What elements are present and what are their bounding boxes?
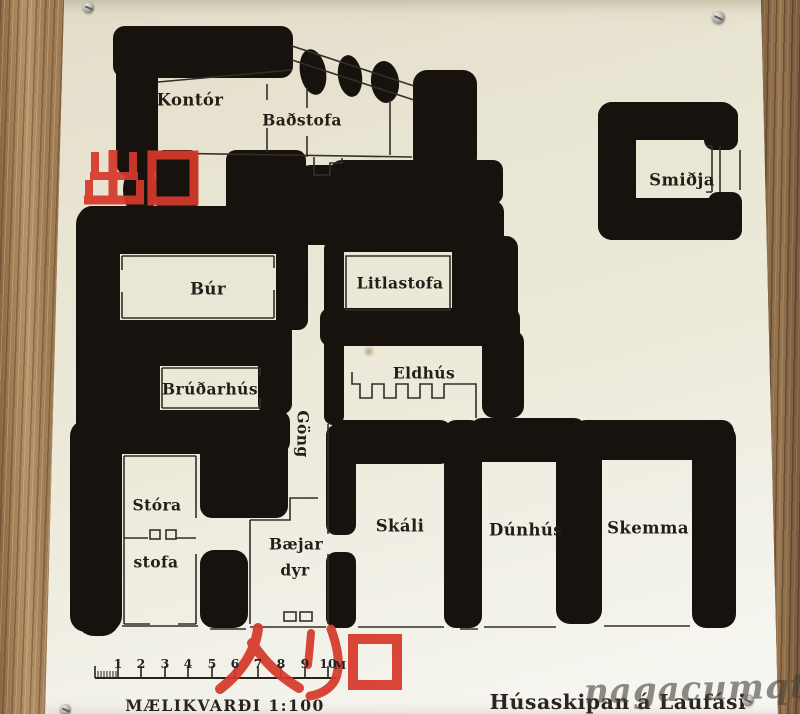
wall-stora-east-upper [200, 418, 288, 518]
turf-walls [70, 26, 742, 636]
floor-plan-sign: Kontór Baðstofa Smiðja Búr Litlastofa Br… [0, 0, 800, 714]
scale-number: 4 [179, 656, 197, 671]
room-label-brudarhus: Brúðarhús [162, 380, 258, 399]
scale-hatch [98, 671, 116, 678]
room-label-skemma: Skemma [607, 519, 689, 538]
wall-blob-1 [296, 47, 330, 97]
room-label-dunhus: Dúnhús [489, 521, 563, 540]
wall-above-litlastofa [330, 160, 465, 252]
scale-number: 1 [109, 656, 127, 671]
wall-brudarhus-east [258, 340, 292, 414]
entrance-glyph-mouth [353, 639, 397, 685]
line-door-swing-4 [300, 612, 312, 621]
scale-number: 2 [132, 656, 150, 671]
scale-unit-label: M [334, 659, 346, 672]
wall-smidja-east-b [708, 192, 742, 240]
wall-badstofa-east [413, 70, 477, 172]
wall-skali-west-b [326, 552, 356, 628]
line-door-swing-1 [150, 530, 160, 539]
stain-spot [362, 346, 376, 357]
wall-blob-3 [369, 60, 401, 105]
photo-floor-plan-sign: Kontór Baðstofa Smiðja Búr Litlastofa Br… [0, 0, 800, 714]
room-label-eldhus: Eldhús [393, 364, 455, 383]
screw-bottom-left [60, 704, 71, 714]
scale-number: 6 [226, 656, 244, 671]
room-label-gong: Göng [294, 410, 313, 457]
line-door-swing-3 [284, 612, 296, 621]
scale-number: 7 [249, 656, 267, 671]
room-label-badstofa: Baðstofa [262, 111, 342, 130]
scale-number: 9 [296, 656, 314, 671]
wall-smidja-east-a [704, 106, 738, 150]
room-label-litlastofa: Litlastofa [357, 274, 444, 293]
screw-top-left [83, 2, 94, 13]
watermark-text: nagacumqtz [584, 666, 800, 712]
wall-stora-east-lower [200, 550, 248, 628]
wall-skali-west-a [326, 425, 356, 535]
room-label-smidja: Smiðja [649, 171, 715, 190]
scale-number: 3 [156, 656, 174, 671]
scale-caption: MÆLIKVARÐI 1:100 [125, 696, 325, 714]
scale-number: 5 [203, 656, 221, 671]
room-label-bur: Búr [190, 280, 226, 299]
room-label-skali: Skáli [376, 517, 425, 536]
room-label-stora: Stóra [133, 496, 182, 515]
wall-litlastofa-south [320, 308, 520, 346]
room-label-baejar: Bæjar [269, 535, 323, 554]
scale-number: 8 [272, 656, 290, 671]
line-door-swing-2 [166, 530, 176, 539]
floor-plan-graphic [0, 0, 800, 714]
wall-skemma-east [692, 424, 736, 628]
room-label-stofa: stofa [134, 553, 179, 572]
wall-bur-east [276, 230, 308, 330]
room-label-kontor: Kontór [157, 91, 224, 110]
line-storastofa-outline [124, 456, 196, 624]
room-label-dyr: dyr [280, 561, 309, 580]
screw-top-right [712, 11, 725, 24]
line-bottom-sills [122, 626, 690, 629]
